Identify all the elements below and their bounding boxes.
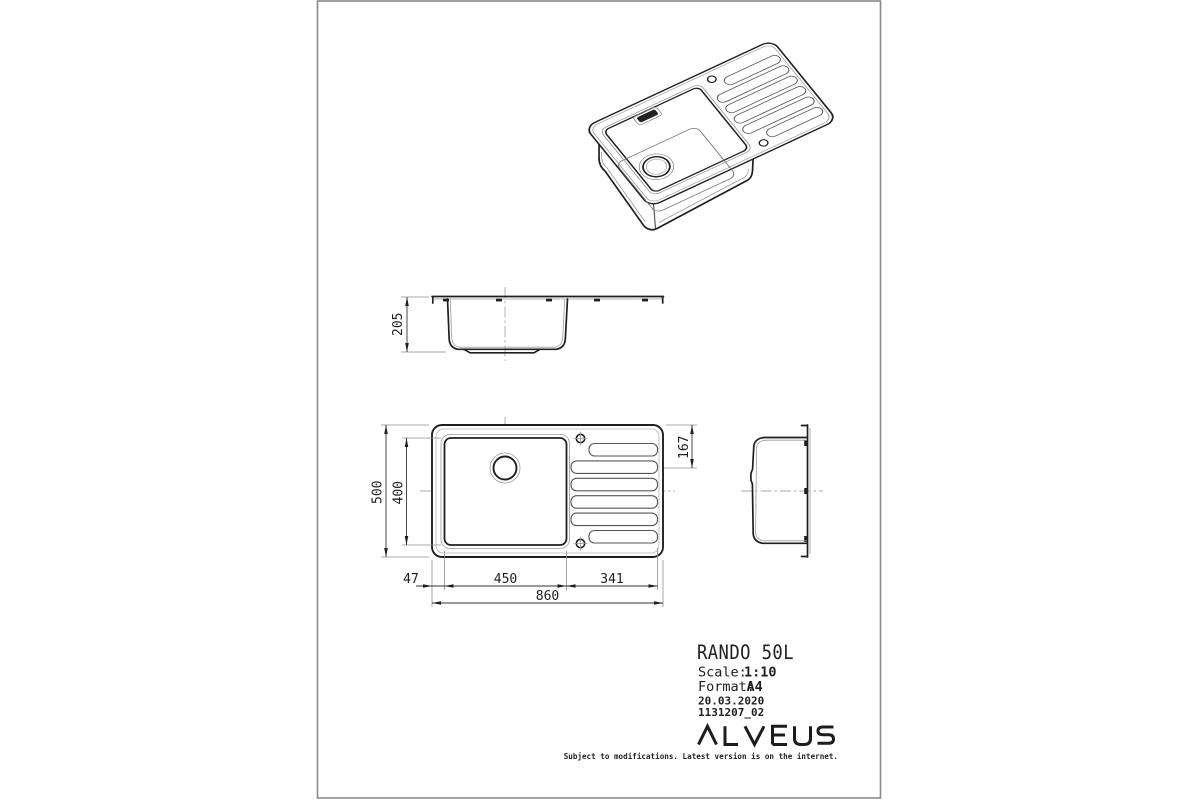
dim-bowl-width-label: 400	[392, 481, 407, 504]
drawing-canvas: 205	[0, 0, 1200, 800]
dim-overall-length-label: 860	[536, 589, 559, 604]
dim-left-offset-label: 47	[403, 572, 419, 587]
dim-overall-width-label: 500	[371, 481, 386, 504]
format-value: A4	[747, 679, 763, 695]
technical-drawing-page: 205	[0, 0, 1200, 800]
dim-bowl-depth-label: 205	[391, 313, 406, 336]
dim-drain-offset-label: 167	[677, 436, 692, 459]
product-title: RANDO 50L	[697, 641, 794, 664]
drawing-number: 1131207_02	[698, 706, 764, 719]
disclaimer-text: Subject to modifications. Latest version…	[564, 752, 838, 761]
dim-drainer-length-label: 341	[600, 572, 623, 587]
dim-bowl-length-label: 450	[494, 572, 517, 587]
